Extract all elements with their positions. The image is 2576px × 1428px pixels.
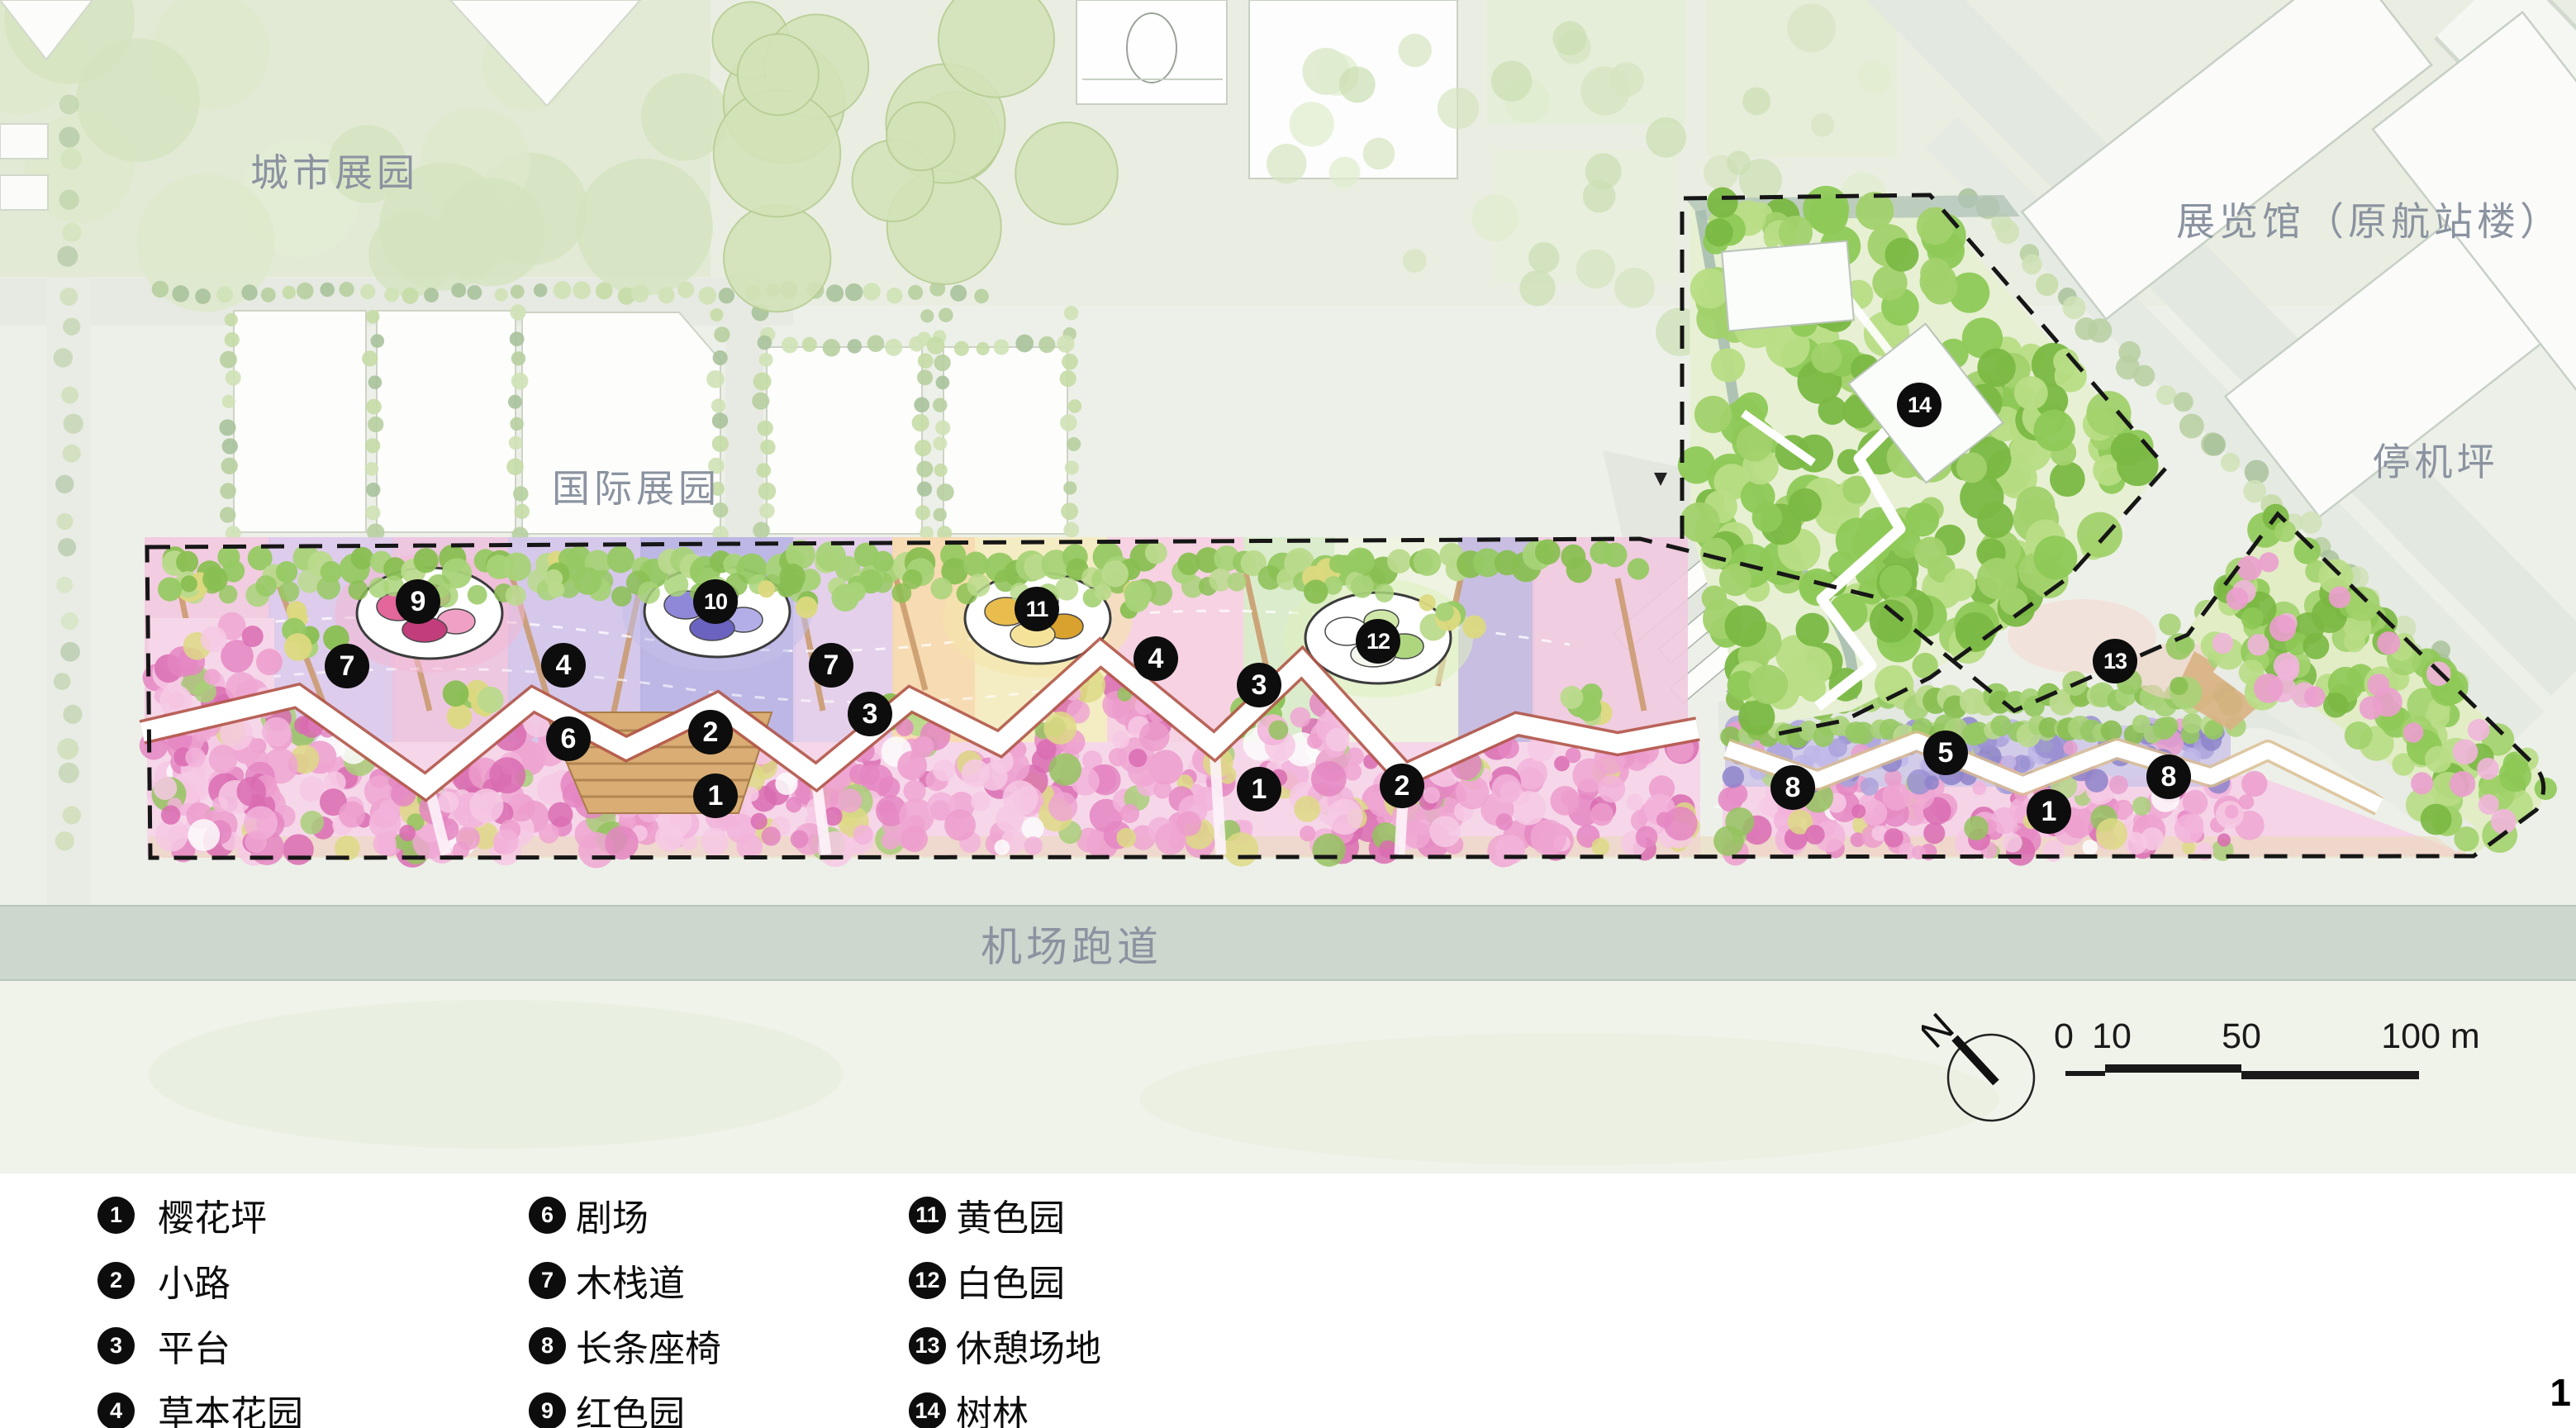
legend-number-badge: 3 xyxy=(97,1327,135,1364)
legend-item-9: 9红色园 xyxy=(529,1384,721,1428)
plan-marker-7: 7 xyxy=(325,644,369,688)
plan-marker-3: 3 xyxy=(1237,663,1281,707)
legend-label: 平台 xyxy=(158,1319,231,1372)
plan-marker-4: 4 xyxy=(541,643,586,688)
plan-marker-9: 9 xyxy=(396,579,440,624)
legend-number-badge: 11 xyxy=(909,1197,946,1234)
legend-number-badge: 4 xyxy=(97,1392,135,1428)
plan-marker-8: 8 xyxy=(2146,754,2191,799)
legend-number-badge: 2 xyxy=(97,1262,135,1299)
area-label-international-exhibition-garden: 国际展园 xyxy=(552,459,720,513)
plan-marker-7: 7 xyxy=(809,643,853,688)
legend-item-2: 2小路 xyxy=(97,1254,303,1307)
legend-label: 红色园 xyxy=(576,1384,685,1428)
legend-item-1: 1樱花坪 xyxy=(97,1188,303,1241)
legend-number-badge: 13 xyxy=(909,1327,946,1364)
legend-item-13: 13休憩场地 xyxy=(909,1319,1101,1372)
legend-column-3: 11黄色园12白色园13休憩场地14树林 xyxy=(909,1188,1101,1428)
scale-tick-0: 0 xyxy=(2054,1016,2074,1057)
plan-marker-2: 2 xyxy=(1380,764,1424,808)
plan-marker-5: 5 xyxy=(1923,731,1968,775)
scale-tick-100m: 100 m xyxy=(2381,1016,2480,1057)
scale-segment-0 xyxy=(2065,1071,2105,1076)
legend-item-12: 12白色园 xyxy=(909,1254,1101,1307)
area-label-airport-runway: 机场跑道 xyxy=(981,914,1162,973)
legend-label: 白色园 xyxy=(956,1254,1065,1307)
legend-item-7: 7木栈道 xyxy=(529,1254,721,1307)
scale-tick-10: 10 xyxy=(2092,1016,2132,1057)
legend-label: 木栈道 xyxy=(576,1254,685,1307)
legend-label: 樱花坪 xyxy=(158,1188,267,1241)
legend-label: 剧场 xyxy=(576,1188,649,1241)
north-arrow: N xyxy=(1922,1007,2054,1147)
legend-label: 休憩场地 xyxy=(956,1319,1101,1372)
legend-number-badge: 12 xyxy=(909,1262,946,1299)
legend-number-badge: 7 xyxy=(529,1262,566,1299)
plan-marker-11: 11 xyxy=(1015,587,1059,631)
north-letter: N xyxy=(1922,1007,1962,1057)
legend-column-1: 1樱花坪2小路3平台4草本花园5乔木花园 xyxy=(97,1188,303,1428)
legend-item-11: 11黄色园 xyxy=(909,1188,1101,1241)
plan-marker-10: 10 xyxy=(693,579,738,624)
legend-item-3: 3平台 xyxy=(97,1319,303,1372)
plan-marker-4: 4 xyxy=(1134,636,1178,681)
scale-tick-50: 50 xyxy=(2222,1016,2261,1057)
legend-label: 树林 xyxy=(956,1384,1029,1428)
legend-column-2: 6剧场7木栈道8长条座椅9红色园10蓝紫色园 xyxy=(529,1188,721,1428)
plan-marker-14: 14 xyxy=(1897,383,1942,427)
plan-marker-6: 6 xyxy=(546,716,591,761)
area-label-apron: 停机坪 xyxy=(2373,432,2499,487)
legend-label: 草本花园 xyxy=(158,1384,303,1428)
legend-item-14: 14树林 xyxy=(909,1384,1101,1428)
scale-segment-2 xyxy=(2241,1071,2419,1079)
legend-number-badge: 8 xyxy=(529,1327,566,1364)
plan-marker-1: 1 xyxy=(1237,767,1281,812)
legend-label: 小路 xyxy=(158,1254,231,1307)
plan-marker-2: 2 xyxy=(688,710,733,754)
legend: 1樱花坪2小路3平台4草本花园5乔木花园6剧场7木栈道8长条座椅9红色园10蓝紫… xyxy=(0,1188,2576,1428)
area-label-city-exhibition-garden: 城市展园 xyxy=(250,143,419,198)
legend-label: 长条座椅 xyxy=(576,1319,721,1372)
plan-marker-12: 12 xyxy=(1356,619,1400,664)
legend-number-badge: 6 xyxy=(529,1197,566,1234)
page-number: 1 xyxy=(2521,1370,2571,1415)
legend-item-6: 6剧场 xyxy=(529,1188,721,1241)
site-plan-page: 城市展园国际展园展览馆（原航站楼）停机坪机场跑道 974621107311431… xyxy=(0,0,2576,1428)
legend-item-4: 4草本花园 xyxy=(97,1384,303,1428)
plan-marker-1: 1 xyxy=(693,773,738,818)
legend-number-badge: 1 xyxy=(97,1197,135,1234)
legend-number-badge: 14 xyxy=(909,1392,946,1428)
scale-segment-1 xyxy=(2105,1064,2241,1073)
area-label-exhibition-hall: 展览馆（原航站楼） xyxy=(2176,190,2563,247)
plan-marker-13: 13 xyxy=(2093,639,2137,683)
plan-marker-3: 3 xyxy=(848,692,892,736)
plan-marker-1: 1 xyxy=(2027,789,2071,834)
legend-number-badge: 9 xyxy=(529,1392,566,1428)
plan-marker-8: 8 xyxy=(1770,765,1815,810)
legend-label: 黄色园 xyxy=(956,1188,1065,1241)
legend-item-8: 8长条座椅 xyxy=(529,1319,721,1372)
